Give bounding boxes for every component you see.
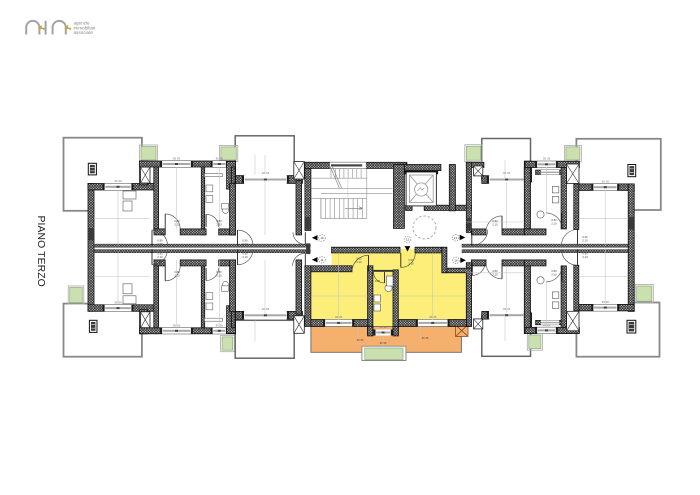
- svg-text:14: 14: [454, 259, 458, 263]
- svg-text:0.90: 0.90: [242, 252, 248, 256]
- svg-text:0.90: 0.90: [157, 252, 163, 256]
- svg-text:0.80: 0.80: [492, 219, 498, 223]
- svg-text:2.10: 2.10: [157, 242, 163, 246]
- svg-text:0.80: 0.80: [375, 279, 381, 283]
- svg-text:36 36: 36 36: [422, 336, 429, 340]
- svg-text:0.90: 0.90: [408, 258, 414, 262]
- svg-text:2.10: 2.10: [492, 273, 498, 277]
- svg-text:2.10: 2.10: [356, 260, 362, 264]
- svg-text:0.80: 0.80: [174, 219, 180, 223]
- svg-text:36 36: 36 36: [379, 325, 387, 329]
- svg-text:0.90: 0.90: [582, 252, 588, 256]
- svg-text:13: 13: [454, 236, 458, 240]
- svg-text:36 36: 36 36: [380, 341, 387, 345]
- svg-text:PIANO TERZO: PIANO TERZO: [35, 216, 46, 287]
- svg-text:36 36: 36 36: [357, 338, 364, 342]
- svg-text:2.10: 2.10: [551, 222, 557, 226]
- svg-text:36 36: 36 36: [543, 157, 551, 161]
- svg-text:0.90: 0.90: [582, 235, 588, 239]
- svg-text:2.10: 2.10: [582, 255, 588, 259]
- svg-text:0.80: 0.80: [216, 270, 222, 274]
- svg-text:36 36: 36 36: [262, 307, 270, 311]
- svg-text:2.10: 2.10: [582, 239, 588, 243]
- svg-text:0.80: 0.80: [174, 270, 180, 274]
- svg-text:associate: associate: [74, 30, 94, 35]
- svg-text:11: 11: [320, 258, 323, 262]
- svg-text:36 36: 36 36: [601, 179, 609, 183]
- svg-text:0.80: 0.80: [356, 257, 362, 261]
- svg-text:0.90: 0.90: [157, 239, 163, 243]
- svg-text:0.90: 0.90: [242, 239, 248, 243]
- svg-text:36 36: 36 36: [262, 171, 270, 175]
- svg-text:2.10: 2.10: [492, 223, 498, 227]
- svg-text:0.80: 0.80: [551, 218, 557, 222]
- svg-text:2.10: 2.10: [174, 223, 180, 227]
- svg-text:36 36: 36 36: [173, 157, 181, 161]
- svg-text:2.10: 2.10: [216, 223, 222, 227]
- svg-text:36 36: 36 36: [114, 179, 122, 183]
- svg-text:2.10: 2.10: [157, 255, 163, 259]
- svg-text:0.80: 0.80: [551, 269, 557, 273]
- svg-text:36 36: 36 36: [503, 171, 511, 175]
- svg-text:2.10: 2.10: [242, 255, 248, 259]
- svg-text:12: 12: [406, 238, 410, 242]
- svg-text:2.10: 2.10: [174, 274, 180, 278]
- svg-text:2.10: 2.10: [242, 242, 248, 246]
- svg-text:0.80: 0.80: [492, 269, 498, 273]
- svg-text:2.10: 2.10: [216, 274, 222, 278]
- svg-text:36 36: 36 36: [215, 157, 223, 161]
- svg-text:10: 10: [320, 236, 324, 240]
- svg-text:2.10: 2.10: [551, 273, 557, 277]
- svg-text:0.80: 0.80: [216, 219, 222, 223]
- svg-text:2.10: 2.10: [408, 262, 414, 266]
